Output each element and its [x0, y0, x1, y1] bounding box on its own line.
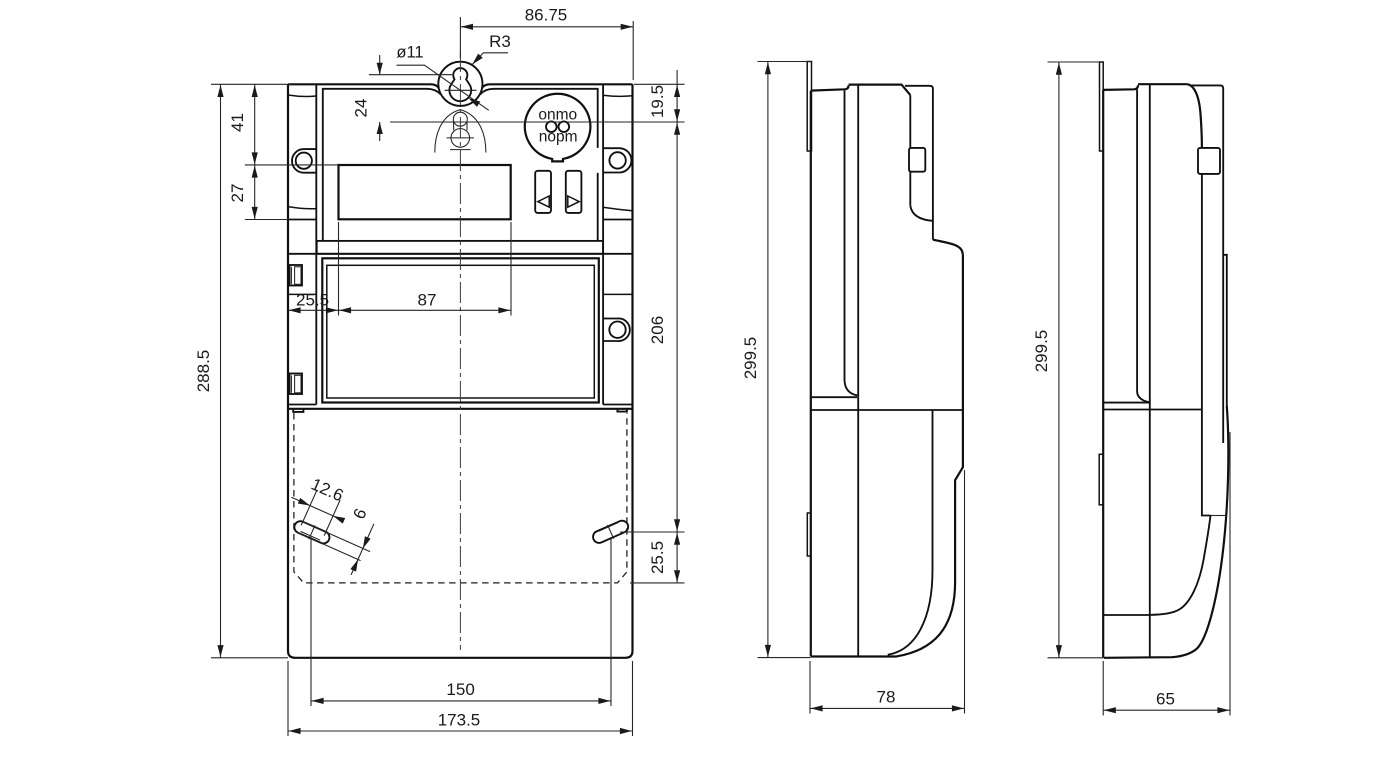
svg-text:150: 150 — [446, 680, 474, 699]
svg-text:78: 78 — [877, 688, 896, 707]
svg-text:288.5: 288.5 — [194, 350, 213, 393]
svg-text:onmo: onmo — [538, 107, 577, 124]
svg-text:R3: R3 — [489, 32, 511, 51]
svg-text:87: 87 — [418, 291, 437, 310]
svg-text:299.5: 299.5 — [741, 337, 760, 380]
svg-text:nopm: nopm — [539, 129, 578, 146]
svg-text:25.5: 25.5 — [296, 291, 329, 310]
svg-text:41: 41 — [228, 113, 247, 132]
svg-text:65: 65 — [1156, 690, 1175, 709]
svg-text:173.5: 173.5 — [438, 711, 481, 730]
svg-text:299.5: 299.5 — [1032, 330, 1051, 373]
svg-text:206: 206 — [648, 316, 667, 344]
svg-text:19.5: 19.5 — [648, 85, 667, 118]
svg-text:27: 27 — [228, 184, 247, 203]
svg-text:86.75: 86.75 — [525, 6, 568, 25]
svg-text:ø11: ø11 — [396, 44, 423, 62]
svg-text:24: 24 — [352, 99, 371, 118]
svg-text:25.5: 25.5 — [648, 541, 667, 574]
